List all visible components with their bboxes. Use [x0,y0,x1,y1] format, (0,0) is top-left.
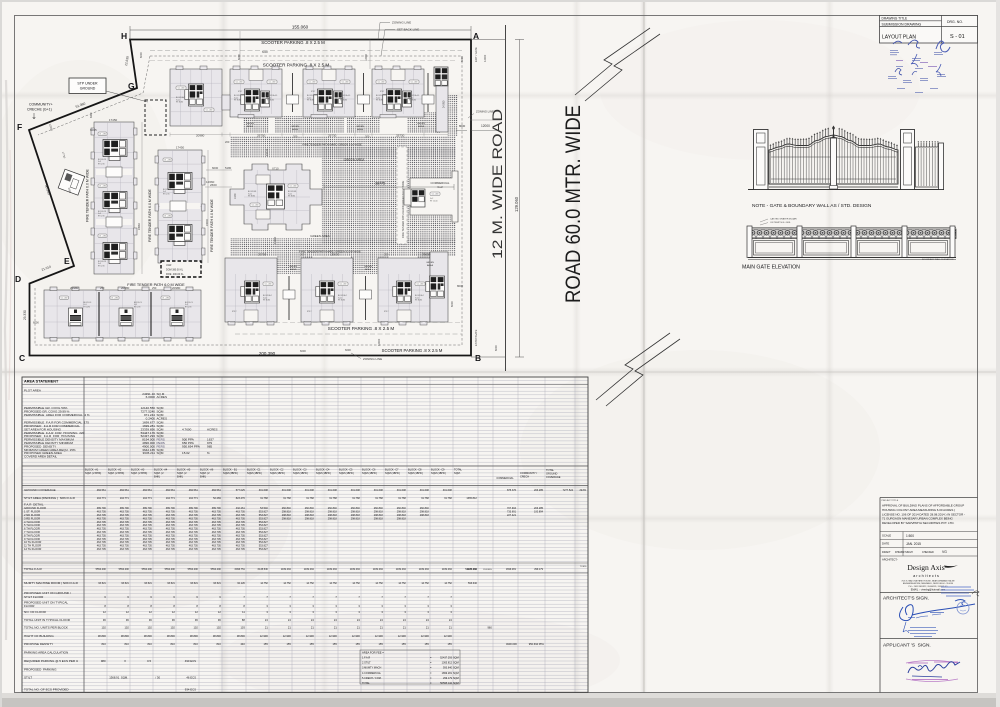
svg-text:484.561: 484.561 [97,489,107,492]
svg-text:PROJECT TITLE: PROJECT TITLE [882,500,899,502]
svg-text:20000: 20000 [206,219,209,226]
svg-text:CHECKED: CHECKED [922,551,934,554]
svg-text:BLOCK-C8: BLOCK-C8 [98,211,106,213]
svg-text:31.768: 31.768 [329,497,337,500]
svg-text:SQM. (2 BHK): SQM. (2 BHK) [85,471,101,475]
svg-text:GREEN: GREEN [291,126,299,128]
svg-text:HT 12.90: HT 12.90 [163,193,170,195]
svg-text:38.800: 38.800 [121,634,129,638]
svg-text:14.752: 14.752 [283,582,291,585]
svg-text:NOTE - GATE & BOUNDARY WALL AS: NOTE - GATE & BOUNDARY WALL AS / STD. DE… [752,203,872,209]
svg-text:L/L +180: L/L +180 [162,297,169,299]
svg-text:14.752: 14.752 [398,582,406,585]
svg-text:301.608: 301.608 [397,489,407,492]
svg-text:SQM.(1BHK): SQM.(1BHK) [270,471,285,475]
svg-text:SQM.: SQM. [454,471,461,475]
svg-text:12000: 12000 [365,54,368,61]
svg-text:301.608: 301.608 [282,489,292,492]
svg-text:6.0000: 6.0000 [146,395,156,399]
svg-text:SQM: SQM [453,667,459,670]
svg-text:L/L +180: L/L +180 [269,82,276,84]
svg-text:5554.200: 5554.200 [188,568,199,571]
svg-text:COMMUNITY+: COMMUNITY+ [29,103,53,107]
svg-text:12.900: 12.900 [352,634,360,638]
svg-text:29.8%: 29.8% [579,490,586,492]
svg-text:a r c h i t e c t s: a r c h i t e c t s [913,574,939,578]
svg-text:HOUSING COLONY AREA MEASURING: HOUSING COLONY AREA MEASURING 6.00 ACRES… [882,508,955,512]
svg-text:ZONING LINE: ZONING LINE [392,21,411,25]
svg-text:484.561: 484.561 [166,489,176,492]
svg-text:38.800: 38.800 [98,634,106,638]
svg-text:203.285: 203.285 [534,489,544,492]
svg-text:7277.524: 7277.524 [563,489,574,492]
svg-text:301.608: 301.608 [420,489,430,492]
svg-text:155: 155 [286,642,291,646]
svg-text:6000: 6000 [300,349,306,353]
svg-text:F.A.R DETAIL: F.A.R DETAIL [24,503,44,507]
svg-text:EMAIL :- vireshg@hotmail.com: EMAIL :- vireshg@hotmail.com [911,589,945,592]
svg-text:L/L +180: L/L +180 [309,82,316,84]
svg-text:G+3: G+3 [98,263,101,265]
svg-text:12.900: 12.900 [306,634,314,638]
svg-text:HT 38.80: HT 38.80 [248,196,255,198]
svg-text:BLOCK -C2: BLOCK -C2 [270,468,284,472]
svg-text:G+3: G+3 [185,304,188,306]
svg-text:104.771: 104.771 [97,497,107,500]
svg-text:463.705: 463.705 [143,548,153,551]
svg-text:810: 810 [124,642,129,646]
svg-text:HT 12.90: HT 12.90 [134,306,140,308]
svg-text:SET BACK LINE: SET BACK LINE [397,28,419,32]
svg-text:ARCHITECT:-: ARCHITECT:- [882,558,898,562]
svg-text:14.752: 14.752 [444,582,452,585]
svg-text:GREEN: GREEN [289,266,297,268]
svg-text:TOTAL: TOTAL [454,468,463,472]
svg-text:SQM.(1BHK): SQM.(1BHK) [362,471,377,475]
svg-text:2.STILT: 2.STILT [362,662,371,665]
svg-text:BLOCK - B1: BLOCK - B1 [223,468,238,472]
svg-text:5554.200: 5554.200 [142,568,153,571]
svg-text:38.800: 38.800 [144,634,152,638]
svg-text:STILT FLOOR: STILT FLOOR [24,595,44,599]
svg-text:810: 810 [101,642,106,646]
svg-text:GREEN: GREEN [246,123,254,125]
svg-text:SCOOTER PARKING .8 X 2.5 M: SCOOTER PARKING .8 X 2.5 M [261,40,325,45]
svg-text:CRECH: CRECH [520,474,529,478]
svg-text:6000: 6000 [139,52,143,58]
svg-text:1368.91 SQM.: 1368.91 SQM. [109,676,128,680]
svg-text:31.768: 31.768 [283,497,291,500]
svg-text:L/L +180: L/L +180 [342,82,349,84]
svg-text:553.827: 553.827 [259,548,269,551]
svg-text:12.900: 12.900 [421,634,429,638]
svg-text:24.950: 24.950 [443,100,446,108]
svg-text:1169.294: 1169.294 [419,568,430,571]
svg-text:155: 155 [447,642,452,646]
svg-text:TOTAL F.A.R: TOTAL F.A.R [24,567,43,571]
svg-text:BLOCK -A4: BLOCK -A4 [154,468,168,472]
svg-text:5.CRECH / COM.: 5.CRECH / COM. [362,677,382,680]
svg-text:SCOOTER PARKING .8 X 2.5 M: SCOOTER PARKING .8 X 2.5 M [328,326,395,331]
svg-text:484.561: 484.561 [189,489,199,492]
svg-text:SQM.(1BHK): SQM.(1BHK) [408,471,423,475]
svg-text:APPROVAL OF BUILDING PLANS OF: APPROVAL OF BUILDING PLANS OF AFFORDABLE… [882,504,964,508]
svg-text:200.390: 200.390 [259,351,276,356]
svg-text:L/L +180: L/L +180 [206,110,213,112]
svg-text:GROUND FLOOR: GROUND FLOOR [24,506,46,510]
svg-text:298.818: 298.818 [397,517,407,520]
svg-text:593.640: 593.640 [443,667,453,670]
svg-text:/ 30: / 30 [155,676,160,680]
svg-text:810: 810 [170,642,175,646]
svg-text:GREEN AREA: GREEN AREA [310,234,330,238]
svg-text:TOTAL NO. OF ECS PROVIDED: TOTAL NO. OF ECS PROVIDED [24,688,69,692]
svg-text:1699.281: 1699.281 [506,568,517,571]
svg-text:950.694 PPA: 950.694 PPA [529,642,544,646]
svg-text:38.800: 38.800 [167,634,175,638]
svg-text:11 TH FLOOR: 11 TH FLOOR [24,544,41,548]
svg-text:SCOOTER PARKING .8 X 2.5 M: SCOOTER PARKING .8 X 2.5 M [263,63,330,68]
svg-text:129.060: 129.060 [514,196,519,212]
svg-text:BLOCK -C4: BLOCK -C4 [316,468,330,472]
svg-text:102: 102 [124,626,129,630]
svg-text:14.752: 14.752 [329,582,337,585]
svg-text:12 TH FLOOR: 12 TH FLOOR [24,547,41,551]
svg-text:6000: 6000 [90,112,93,118]
svg-text:1169.294: 1169.294 [396,568,407,571]
svg-text:810: 810 [147,642,152,646]
svg-text:463.705: 463.705 [97,548,107,551]
svg-text:L/L +180: L/L +180 [378,82,385,84]
svg-text:HT 38.80: HT 38.80 [288,196,295,198]
svg-text:SQM. (2 BHK): SQM. (2 BHK) [131,471,147,475]
svg-text:20980: 20980 [70,286,79,290]
svg-text:HT 12.90: HT 12.90 [98,163,105,165]
svg-text:L/L +180: L/L +180 [290,186,297,188]
svg-text:FIRE TENDER PATH 6.0 M WIDE: FIRE TENDER PATH 6.0 M WIDE [86,168,90,222]
svg-text:AREA: AREA [292,128,298,131]
svg-text:12000: 12000 [377,338,381,346]
svg-text:CRECHE (G+1): CRECHE (G+1) [27,108,52,112]
svg-text:12.900: 12.900 [375,634,383,638]
svg-text:31.768: 31.768 [352,497,360,500]
svg-text:1169.294: 1169.294 [373,568,384,571]
svg-text:BLOCK -A2: BLOCK -A2 [108,468,122,472]
svg-text:6000: 6000 [262,50,268,54]
svg-text:6000: 6000 [345,348,351,352]
svg-text:DHILBIR SINGH: DHILBIR SINGH [895,551,913,554]
svg-text:STILT AREA (PARKING ) NON F.A: STILT AREA (PARKING ) NON F.A.R [24,496,76,500]
svg-text:299.179: 299.179 [534,568,543,571]
svg-text:HT 12.90: HT 12.90 [84,306,90,308]
svg-text:HT 12.90: HT 12.90 [185,306,191,308]
svg-text:C: C [19,353,25,363]
svg-text:PLOT AREA: PLOT AREA [24,389,42,393]
svg-text:260: 260 [300,253,305,257]
svg-text:ARCHITECT'S SIGN.: ARCHITECT'S SIGN. [883,596,929,602]
svg-text:1169.294: 1169.294 [442,568,453,571]
svg-text:6000: 6000 [450,301,454,307]
svg-text:12000: 12000 [483,54,487,62]
svg-text:SQM. (2: SQM. (2 [177,471,187,475]
svg-text:SQM.(1BHK): SQM.(1BHK) [431,471,446,475]
svg-text:GROUND: GROUND [80,87,96,91]
svg-text:29730: 29730 [328,134,337,138]
svg-text:BLOCK -C1: BLOCK -C1 [247,468,261,472]
svg-text:SQM. (2 BHK): SQM. (2 BHK) [108,471,124,475]
svg-text:G+3: G+3 [98,161,101,163]
svg-text:155: 155 [401,642,406,646]
svg-text:MUMTY MACHINE ROOM | NON F.A.R: MUMTY MACHINE ROOM | NON F.A.R [24,581,79,585]
svg-text:ACRES: ACRES [207,427,218,431]
svg-text:63.521: 63.521 [121,582,129,585]
svg-text:PERMISSIBLE AREA FOR COMMERCI: PERMISSIBLE AREA FOR COMMERCIAL 4 % [24,413,90,417]
svg-text:1365.812: 1365.812 [466,497,477,500]
svg-text:484.561: 484.561 [143,489,153,492]
svg-text:L/L +180: L/L +180 [411,82,418,84]
svg-text:250: 250 [152,286,157,290]
svg-text:301.608: 301.608 [374,489,384,492]
svg-text:484.561: 484.561 [120,489,130,492]
svg-text:63.521: 63.521 [213,582,221,585]
svg-text:STILT: STILT [238,91,242,93]
svg-text:463.705: 463.705 [120,548,130,551]
svg-text:5554.200: 5554.200 [96,568,107,571]
svg-text:HT 36.80: HT 36.80 [267,100,274,102]
svg-text:14.752: 14.752 [306,582,314,585]
svg-text:ANDHERIA MORH, MEHRAULI, NEW D: ANDHERIA MORH, MEHRAULI, NEW DELHI - 110… [903,582,954,585]
svg-text:D: D [15,274,21,284]
svg-text:17450: 17450 [109,118,118,122]
svg-text:TOTAL NO. UNITS PER BLOCK: TOTAL NO. UNITS PER BLOCK [24,626,68,630]
svg-text:TOTAL: TOTAL [546,468,555,472]
svg-text:ROAD 60.0 MTR. WIDE: ROAD 60.0 MTR. WIDE [562,105,585,303]
svg-text:PARKING AREA CALCULATION: PARKING AREA CALCULATION [24,651,68,655]
svg-text:DEVELOPED BY SARVPRIYA SECURIT: DEVELOPED BY SARVPRIYA SECURITIES PVT. L… [882,521,954,525]
svg-text:9 TH FLOOR: 9 TH FLOOR [24,537,40,541]
svg-text:5554.200: 5554.200 [119,568,130,571]
svg-text:CASTED GRATER MUJAR: CASTED GRATER MUJAR [770,218,797,221]
svg-text:5180: 5180 [225,166,232,170]
svg-text:L/L +180: L/L +180 [164,159,171,161]
svg-text:6096.751: 6096.751 [235,568,246,571]
svg-text:100.894: 100.894 [534,511,544,514]
svg-text:298.818: 298.818 [282,517,292,520]
svg-text:ENTRY/GATE: ENTRY/GATE [474,329,478,346]
svg-text:TOTAL: TOTAL [362,682,370,685]
svg-text:BLOCK -A6: BLOCK -A6 [200,468,214,472]
svg-text:BLOCK -A3: BLOCK -A3 [131,468,145,472]
svg-text:BHK): BHK) [177,474,183,478]
svg-text:BLOCK -A1: BLOCK -A1 [85,468,99,472]
svg-text:SUBMISSION DRAWING: SUBMISSION DRAWING [882,22,922,26]
svg-text:BLOCK-C4: BLOCK-C4 [185,302,193,304]
svg-text:HT 36.80: HT 36.80 [263,300,270,302]
svg-text:6000: 6000 [460,56,464,62]
svg-text:HT 36.80: HT 36.80 [307,100,314,102]
svg-text:STILT: STILT [24,676,32,680]
svg-text:29730: 29730 [396,134,405,138]
svg-text:301.608: 301.608 [328,489,338,492]
svg-text:155: 155 [332,642,337,646]
svg-text:SQM.(1BHK): SQM.(1BHK) [293,471,308,475]
svg-text:490 ECS: 490 ECS [185,659,196,663]
svg-text:577.025: 577.025 [236,489,246,492]
svg-text:L/L +180: L/L +180 [178,88,185,90]
svg-text:AREA: AREA [427,264,433,267]
svg-text:6065: 6065 [90,128,97,132]
svg-text:DRAFT: DRAFT [882,550,891,554]
svg-text:STILT: STILT [384,311,388,313]
svg-text:960: 960 [487,626,492,630]
svg-text:440: 440 [240,642,245,646]
svg-text:950.694 PPA: 950.694 PPA [182,444,201,448]
svg-text:13170: 13170 [265,148,269,156]
svg-text:934 ECS: 934 ECS [185,688,196,692]
svg-text:AREA: AREA [357,128,363,131]
svg-text:GREEN AREA: GREEN AREA [344,158,366,162]
svg-text:31.768: 31.768 [421,497,429,500]
svg-text:GREEN: GREEN [417,123,425,125]
svg-text:298.818: 298.818 [420,514,430,517]
svg-text:224.98%: 224.98% [483,569,492,571]
svg-text:SQM: SQM [453,682,459,685]
svg-text:298.818: 298.818 [328,517,338,520]
svg-text:875.376: 875.376 [507,489,517,492]
svg-text:HT 12.00: HT 12.00 [430,200,437,202]
svg-text:COVERAGE: COVERAGE [546,475,561,479]
svg-text:GREEN: GREEN [426,262,434,264]
svg-text:COMMUNITY /: COMMUNITY / [520,471,537,475]
svg-text:463.705: 463.705 [236,548,246,551]
svg-text:STILT: STILT [232,311,236,313]
svg-text:MAIN GATE ELEVATION: MAIN GATE ELEVATION [742,265,800,271]
svg-text:155: 155 [309,642,314,646]
svg-text:299.179: 299.179 [443,677,453,680]
svg-text:52.269: 52.269 [213,497,221,500]
svg-text:L/L +180: L/L +180 [265,284,272,286]
svg-text:SQM.(1BHK): SQM.(1BHK) [339,471,354,475]
svg-text:VG: VG [942,550,947,554]
svg-text:G+3: G+3 [98,213,101,215]
svg-text:155.060: 155.060 [292,25,309,30]
svg-text:810: 810 [193,642,198,646]
svg-text:REQUIRED PARKING @.5 ECS PER U: REQUIRED PARKING @.5 ECS PER U [24,659,78,663]
svg-text:B: B [475,353,481,363]
svg-text:L/L +180: L/L +180 [252,205,259,207]
svg-text:2 ND FLOOR: 2 ND FLOOR [24,513,40,517]
svg-text:HT 36.80: HT 36.80 [176,102,183,104]
svg-text:1365.812: 1365.812 [442,662,453,665]
svg-text:FLOOR: FLOOR [24,604,35,608]
svg-text:SQM.(3BHK): SQM.(3BHK) [223,471,238,475]
svg-text:UGR: UGR [166,264,172,267]
svg-text:56595.142: 56595.142 [440,682,452,685]
svg-text:4 TH FLOOR: 4 TH FLOOR [24,520,40,524]
svg-text:HT 36.80: HT 36.80 [338,300,345,302]
svg-text:12660: 12660 [206,180,215,184]
svg-text:PROPOSED PARKING: PROPOSED PARKING [24,668,57,672]
svg-text:1169.294: 1169.294 [327,568,338,571]
svg-text:31.768: 31.768 [260,497,268,500]
svg-text:46 ECS: 46 ECS [186,676,196,680]
svg-text:1:500: 1:500 [906,534,914,538]
svg-text:4900.000: 4900.000 [506,642,517,646]
svg-text:12.900: 12.900 [283,634,291,638]
svg-text:6000: 6000 [494,345,498,351]
svg-text:GROUND: GROUND [546,471,557,475]
svg-text:1 ST. FLOOR: 1 ST. FLOOR [24,510,40,514]
svg-text:13900: 13900 [273,236,277,244]
svg-text:1899.281: 1899.281 [442,672,453,675]
svg-text:SQM: SQM [453,657,459,660]
svg-text:SQM.(1BHK): SQM.(1BHK) [316,471,331,475]
svg-text:BOUNDARY WALL ELEVATION: BOUNDARY WALL ELEVATION [922,258,954,261]
svg-text:COMMERCIAL: COMMERCIAL [496,476,514,480]
svg-text:E: E [64,256,70,266]
svg-text:HT 36.80: HT 36.80 [376,100,383,102]
svg-text:3645.211: 3645.211 [143,451,156,455]
svg-text:4.COMMERCIAL: 4.COMMERCIAL [362,672,382,675]
svg-text:ZONING LINE: ZONING LINE [363,357,382,361]
svg-text:X710: X710 [272,167,279,171]
svg-text:FIRE TENDER PATH 6.0 M WIDE: FIRE TENDER PATH 6.0 M WIDE [210,198,214,252]
svg-text:200: 200 [225,140,230,144]
svg-text:102: 102 [147,626,152,630]
svg-text:BLOCK-C2: BLOCK-C2 [163,189,171,191]
svg-text:155: 155 [424,642,429,646]
svg-text:HT 12.90: HT 12.90 [98,265,105,267]
svg-text:AREA STATEMENT: AREA STATEMENT [24,380,59,384]
svg-text:STILT: STILT [311,91,315,93]
svg-text:103: 103 [240,626,245,630]
svg-text:20980: 20980 [196,134,205,138]
svg-text:L/L +180: L/L +180 [99,185,106,187]
svg-text:14.752: 14.752 [352,582,360,585]
svg-text:FIRE 400.00 KL: FIRE 400.00 KL [166,273,184,276]
svg-text:L/L +180: L/L +180 [432,194,439,196]
svg-text:15.02: 15.02 [182,451,190,455]
svg-text:STP UNDER: STP UNDER [77,82,98,86]
svg-text:X: X [124,659,126,663]
svg-text:5554.200: 5554.200 [165,568,176,571]
svg-text:AREA: AREA [247,125,253,128]
svg-text:31.768: 31.768 [375,497,383,500]
svg-text:12.900: 12.900 [398,634,406,638]
svg-text:5 TH FLOOR: 5 TH FLOOR [24,523,40,527]
svg-text:12.900: 12.900 [444,634,452,638]
svg-text:1440: 1440 [234,193,237,199]
svg-text:AREA: AREA [365,268,371,271]
svg-text:102: 102 [193,626,198,630]
svg-text:GREEN: GREEN [364,266,372,268]
svg-text:200: 200 [293,135,298,139]
svg-text:102: 102 [101,626,106,630]
svg-text:6145.546: 6145.546 [258,568,269,571]
svg-text:L/L +180: L/L +180 [417,284,424,286]
svg-text:HT 36.80: HT 36.80 [340,100,347,102]
svg-text:463.705: 463.705 [212,548,222,551]
svg-text:G+3: G+3 [84,304,87,306]
svg-text:38.800: 38.800 [190,634,198,638]
svg-text:14.752: 14.752 [260,582,268,585]
svg-text:810: 810 [216,642,221,646]
svg-text:63.521: 63.521 [167,582,175,585]
svg-text:63.521: 63.521 [144,582,152,585]
svg-text:14.752: 14.752 [375,582,383,585]
svg-text:7/26 S. MALVIYA PARK HOUSE, NE: 7/26 S. MALVIYA PARK HOUSE, NEAR DHAMANI… [901,580,955,583]
svg-text:38.800: 38.800 [213,634,221,638]
